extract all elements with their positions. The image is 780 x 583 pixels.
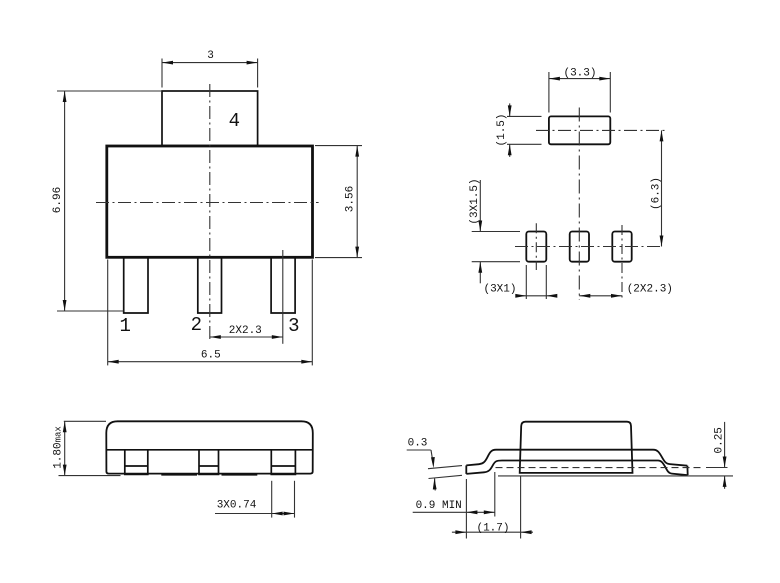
svg-text:(2X2.3): (2X2.3): [627, 284, 673, 296]
svg-text:6.96: 6.96: [52, 187, 64, 213]
svg-text:6.5: 6.5: [201, 350, 221, 362]
svg-text:(1.7): (1.7): [476, 522, 509, 534]
svg-text:0.3: 0.3: [408, 438, 428, 450]
svg-text:(3X1): (3X1): [483, 284, 516, 296]
svg-text:(1.5): (1.5): [496, 113, 508, 146]
svg-text:3.56: 3.56: [344, 186, 356, 212]
svg-text:3: 3: [207, 50, 214, 62]
svg-text:4: 4: [229, 110, 240, 132]
svg-text:(6.3): (6.3): [650, 177, 662, 210]
svg-text:3X0.74: 3X0.74: [217, 499, 257, 511]
svg-text:2: 2: [191, 314, 202, 336]
svg-text:(3X1.5): (3X1.5): [469, 178, 481, 224]
svg-text:0.9 MIN: 0.9 MIN: [416, 500, 462, 512]
svg-text:3: 3: [288, 315, 299, 337]
svg-text:2X2.3: 2X2.3: [229, 325, 262, 337]
svg-text:(3.3): (3.3): [563, 67, 596, 79]
svg-text:0.25: 0.25: [713, 427, 725, 453]
svg-text:1: 1: [119, 315, 130, 337]
svg-text:1.80max: 1.80max: [52, 426, 64, 469]
